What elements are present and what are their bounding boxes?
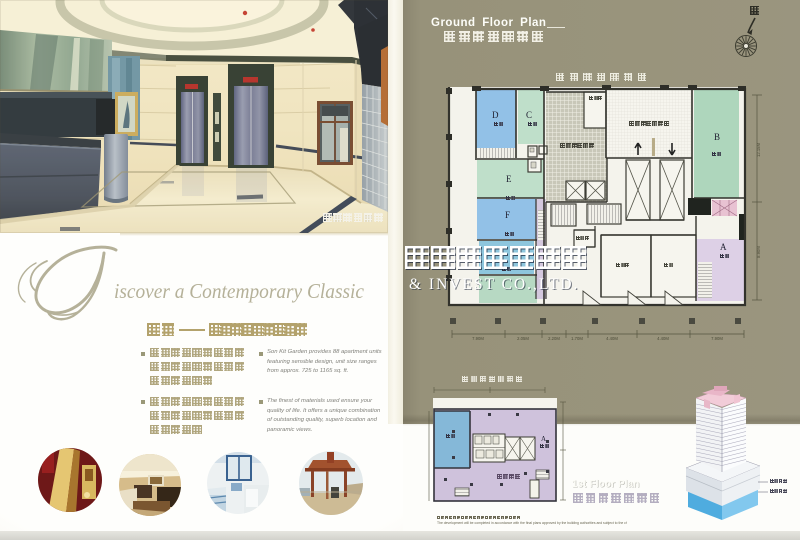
svg-text:iscover a Contemporary Classic: iscover a Contemporary Classic bbox=[114, 279, 365, 303]
svg-text:A: A bbox=[541, 435, 546, 443]
